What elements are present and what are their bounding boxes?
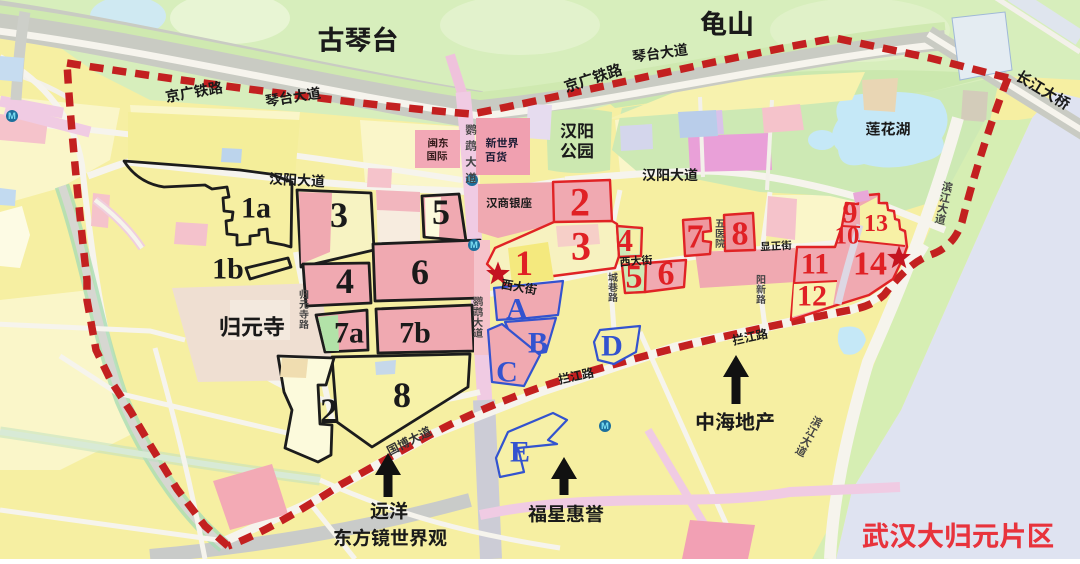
svg-text:8: 8 bbox=[393, 375, 411, 415]
svg-text:13: 13 bbox=[864, 211, 888, 237]
svg-text:M: M bbox=[601, 421, 609, 432]
svg-text:C: C bbox=[496, 356, 518, 389]
svg-text:1b: 1b bbox=[212, 253, 244, 286]
svg-text:7: 7 bbox=[687, 219, 704, 256]
svg-text:5: 5 bbox=[432, 192, 450, 232]
svg-text:7a: 7a bbox=[334, 317, 364, 350]
svg-text:12: 12 bbox=[797, 280, 827, 313]
svg-text:4: 4 bbox=[336, 261, 354, 301]
svg-text:2: 2 bbox=[570, 180, 590, 225]
svg-text:B: B bbox=[528, 327, 548, 360]
svg-text:2: 2 bbox=[320, 391, 338, 431]
svg-text:14: 14 bbox=[853, 246, 887, 283]
svg-text:8: 8 bbox=[732, 216, 749, 253]
svg-text:11: 11 bbox=[801, 248, 829, 281]
svg-text:M: M bbox=[8, 111, 16, 122]
svg-text:3: 3 bbox=[571, 224, 591, 269]
svg-text:3: 3 bbox=[330, 195, 348, 235]
svg-text:1a: 1a bbox=[241, 192, 271, 225]
svg-text:5: 5 bbox=[626, 259, 643, 296]
svg-text:E: E bbox=[510, 436, 530, 469]
svg-text:4: 4 bbox=[617, 222, 633, 258]
svg-text:6: 6 bbox=[658, 256, 675, 293]
svg-text:A: A bbox=[506, 293, 528, 326]
svg-text:6: 6 bbox=[411, 252, 429, 292]
svg-text:M: M bbox=[470, 240, 478, 251]
svg-text:D: D bbox=[601, 330, 623, 363]
svg-text:1: 1 bbox=[515, 243, 533, 283]
svg-text:7b: 7b bbox=[399, 317, 431, 350]
